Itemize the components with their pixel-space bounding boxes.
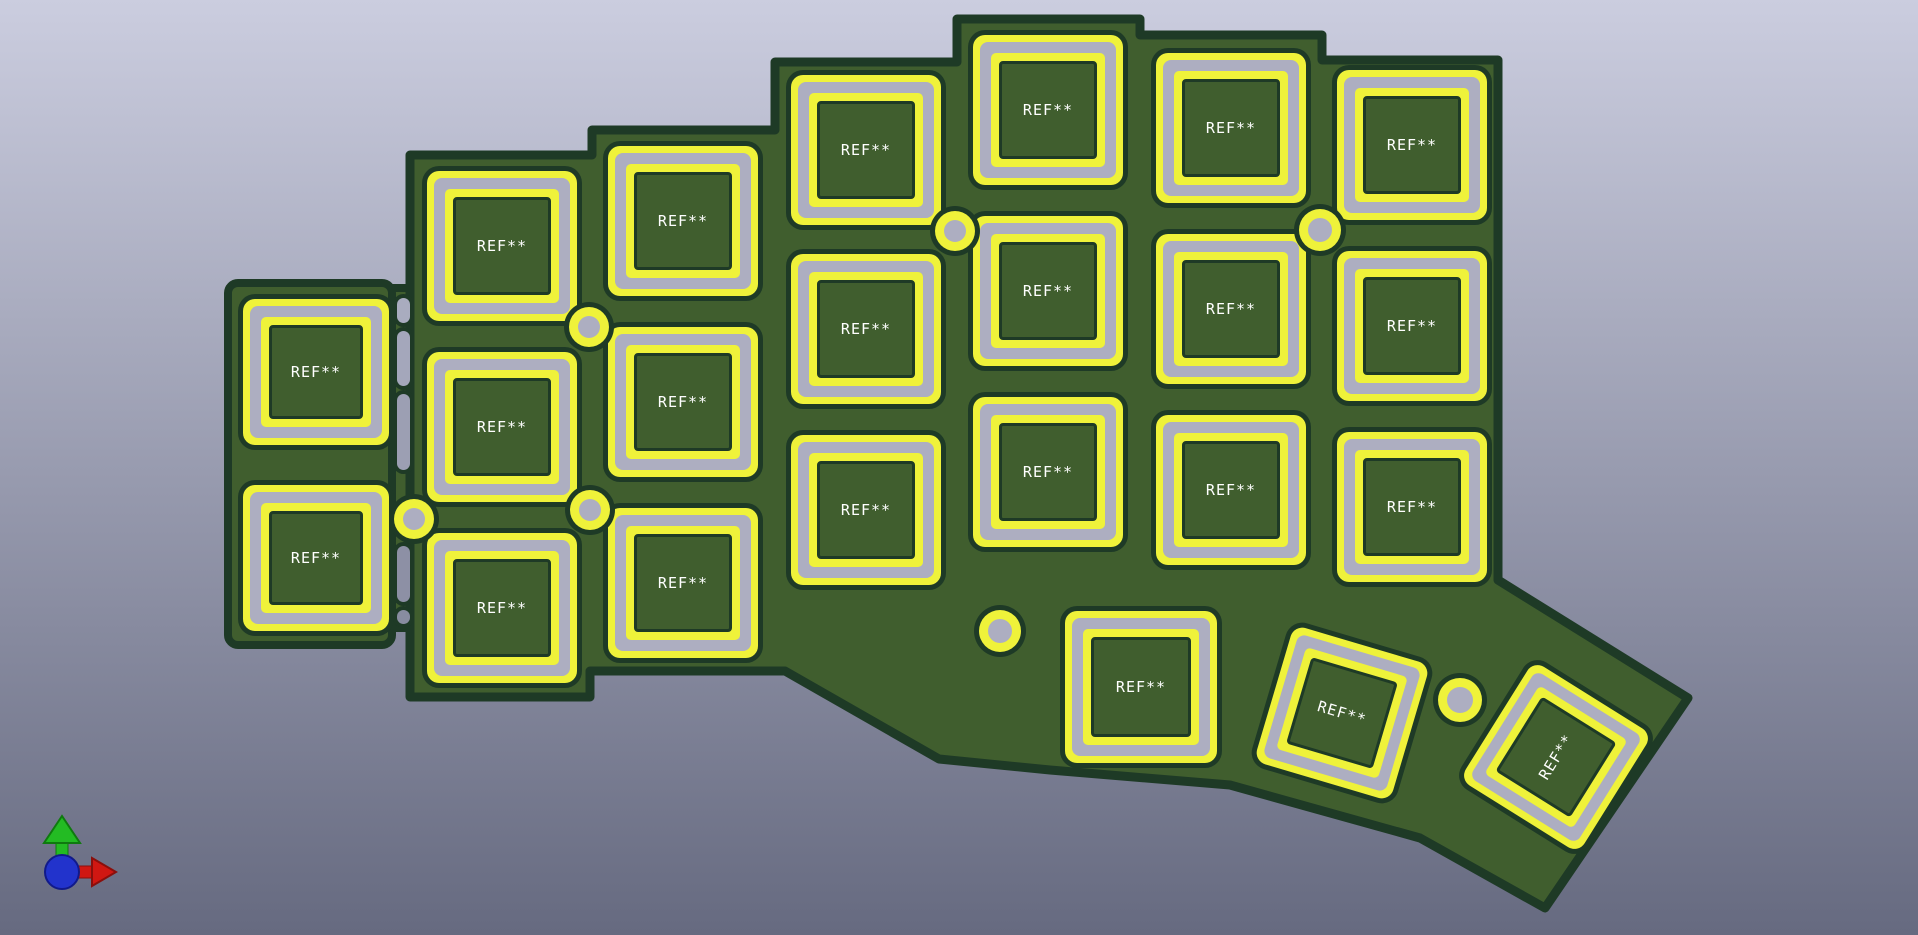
pcb-board: [0, 0, 1918, 935]
y-axis-arrow-head: [44, 816, 80, 843]
z-axis-sphere: [45, 855, 79, 889]
board-left-strip: [228, 283, 392, 645]
x-axis-arrow-head: [92, 858, 116, 886]
axis-orientation-gizmo: [10, 800, 140, 925]
board-main-outline: [410, 19, 1688, 908]
pcb-3d-viewport[interactable]: REF**REF**REF**REF**REF**REF**REF**REF**…: [0, 0, 1918, 935]
